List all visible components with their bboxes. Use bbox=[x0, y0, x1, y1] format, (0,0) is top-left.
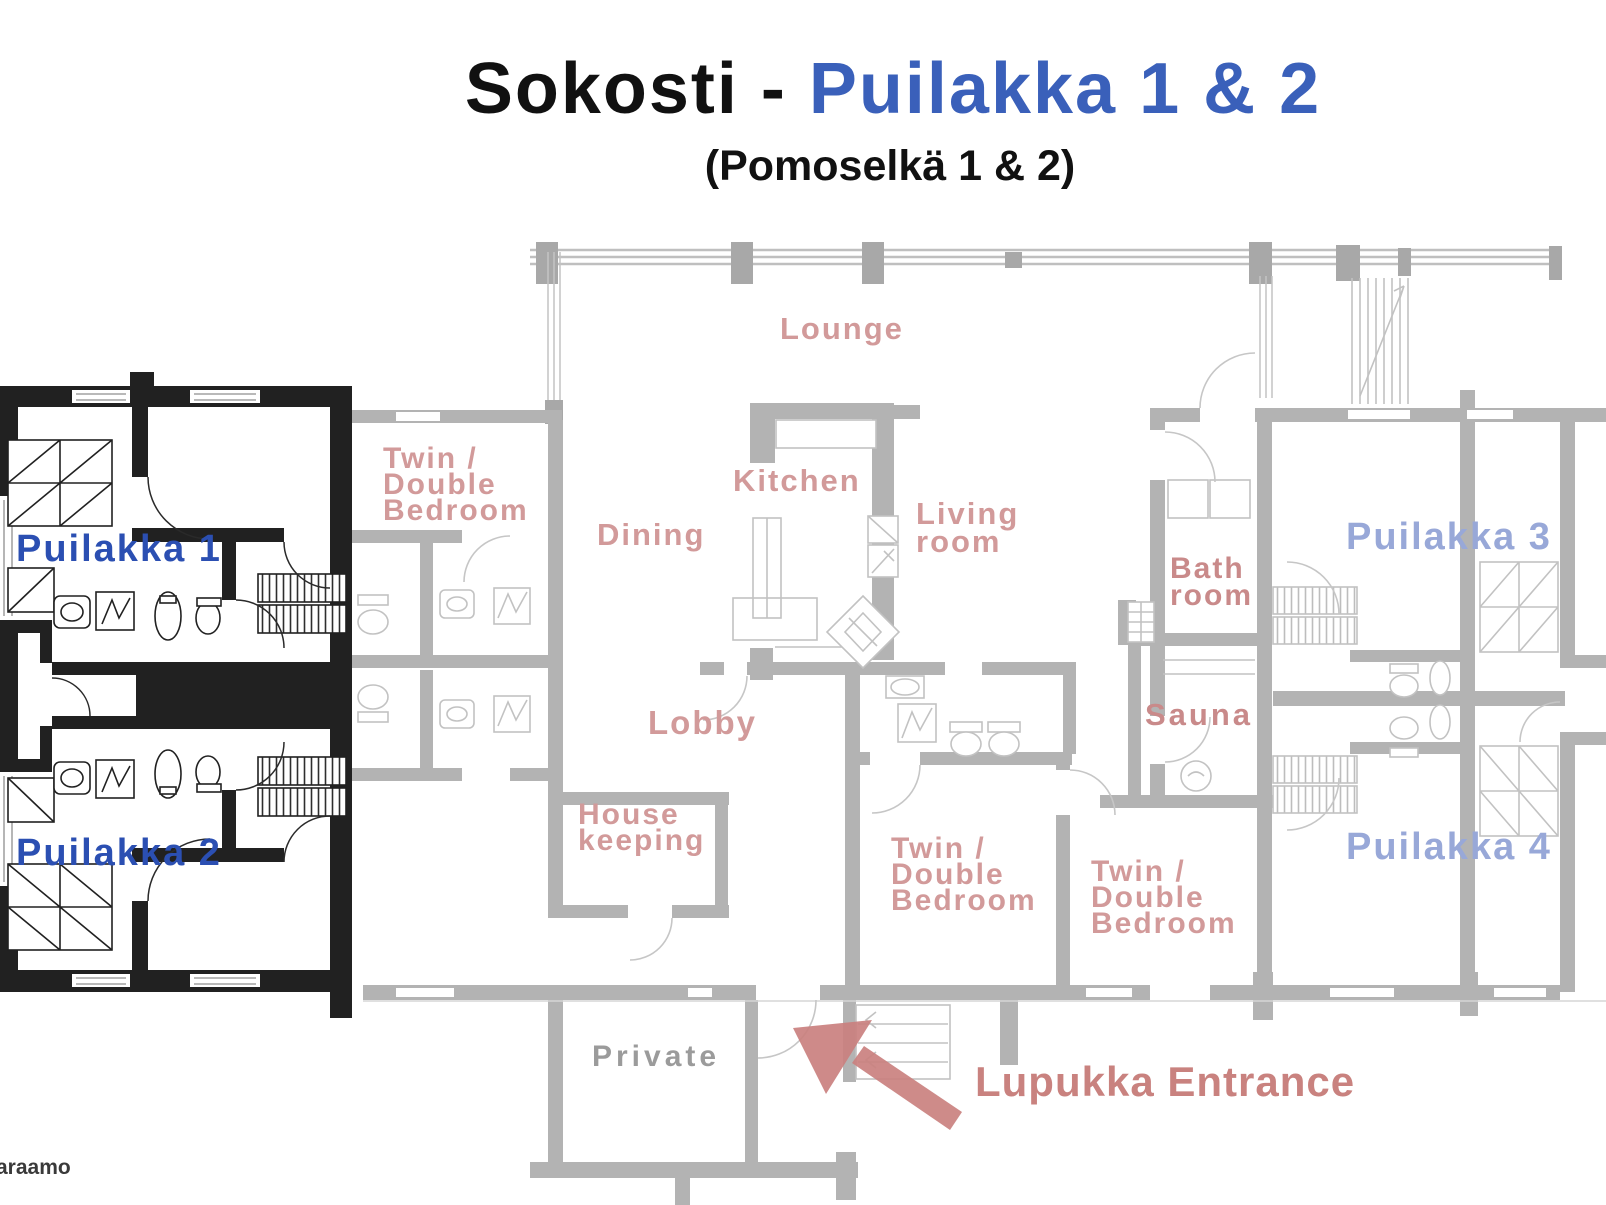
highlighted-unit-1-2 bbox=[0, 372, 352, 1018]
room-label-dining: Dining bbox=[597, 522, 705, 548]
room-label-sauna: Sauna bbox=[1145, 702, 1253, 728]
page-subtitle: (Pomoselkä 1 & 2) bbox=[705, 142, 1075, 191]
entrance-label: Lupukka Entrance bbox=[975, 1058, 1355, 1106]
room-label-lounge: Lounge bbox=[780, 316, 904, 342]
unit-label-puilakka-3: Puilakka 3 bbox=[1346, 516, 1552, 559]
room-label-lobby: Lobby bbox=[648, 710, 757, 736]
room-label-private: Private bbox=[592, 1040, 720, 1074]
room-label-housekeeping: House keeping bbox=[578, 802, 705, 854]
room-label-bath-room: Bath room bbox=[1170, 555, 1253, 609]
room-label-twin-double-3: Twin / Double Bedroom bbox=[1091, 859, 1237, 937]
room-label-twin-double-1: Twin / Double Bedroom bbox=[383, 446, 529, 524]
page-title: Sokosti - Puilakka 1 & 2 bbox=[465, 48, 1321, 130]
floor-plan-page: Sokosti - Puilakka 1 & 2 (Pomoselkä 1 & … bbox=[0, 0, 1606, 1205]
unit-label-puilakka-4: Puilakka 4 bbox=[1346, 826, 1552, 869]
watermark-text: araamo bbox=[0, 1156, 71, 1180]
title-black: Sokosti - bbox=[465, 49, 787, 129]
gray-plan-fixtures bbox=[358, 278, 1558, 1079]
room-label-twin-double-2: Twin / Double Bedroom bbox=[891, 836, 1037, 914]
unit-label-puilakka-2: Puilakka 2 bbox=[16, 832, 222, 875]
unit-label-puilakka-1: Puilakka 1 bbox=[16, 528, 222, 571]
room-label-kitchen: Kitchen bbox=[733, 468, 861, 494]
title-blue: Puilakka 1 & 2 bbox=[809, 49, 1321, 129]
room-label-living-room: Living room bbox=[916, 500, 1019, 556]
